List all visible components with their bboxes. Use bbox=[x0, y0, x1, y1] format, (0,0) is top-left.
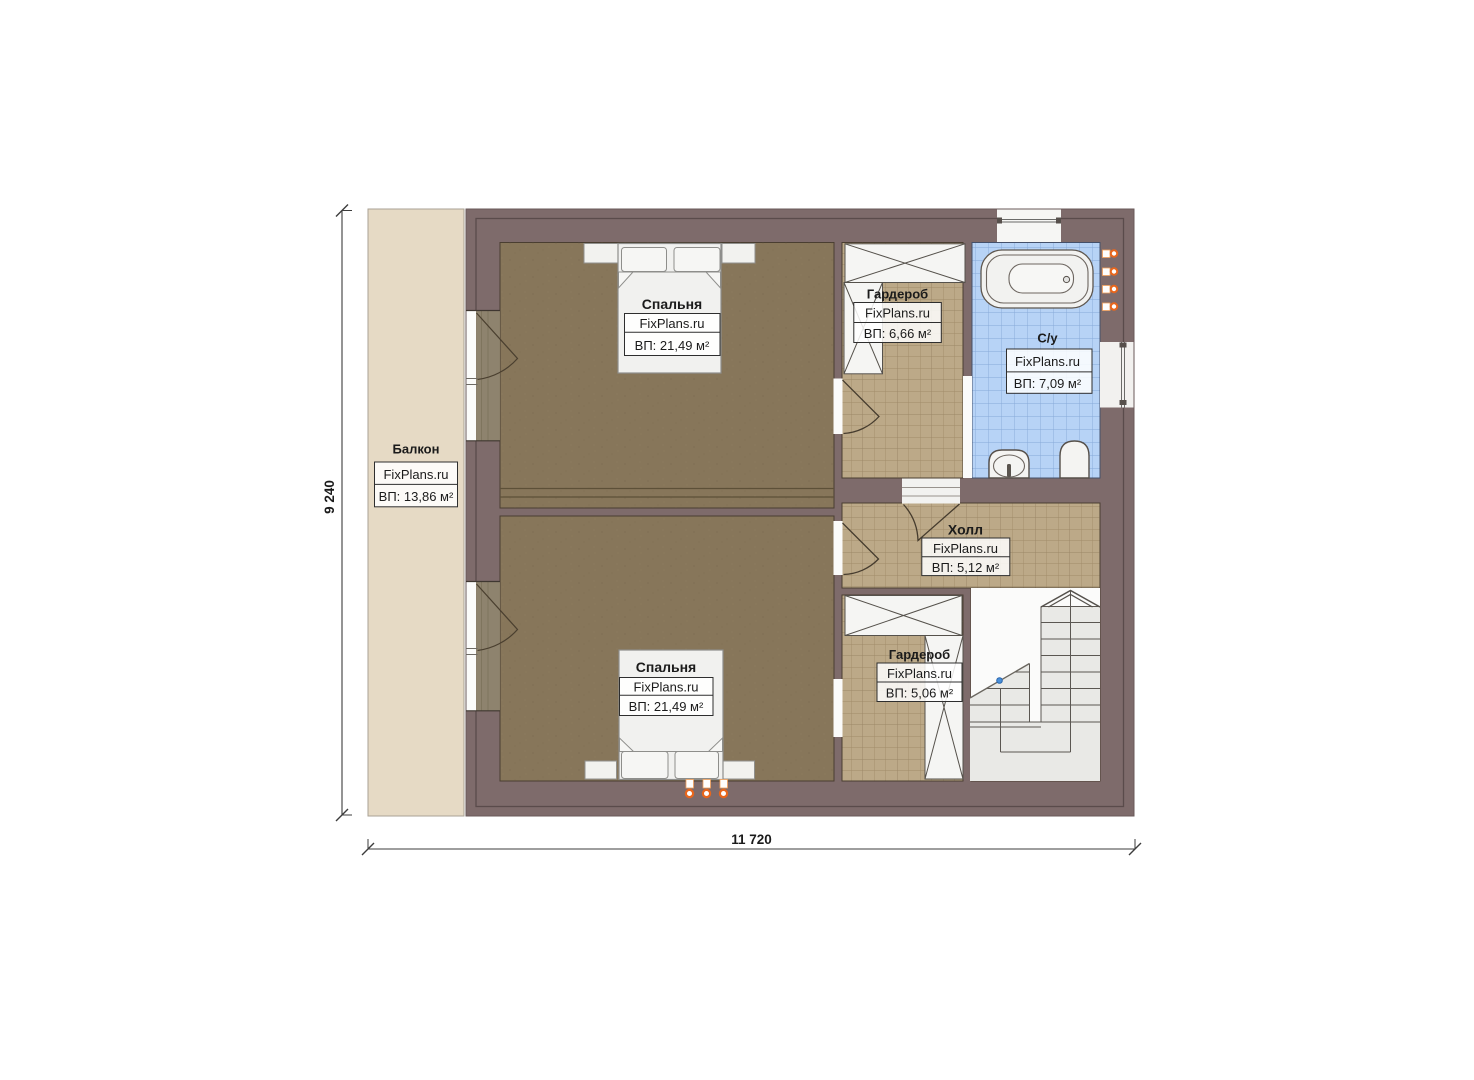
svg-text:Холл: Холл bbox=[948, 522, 983, 538]
svg-text:FixPlans.ru: FixPlans.ru bbox=[639, 316, 704, 331]
svg-text:С/у: С/у bbox=[1037, 331, 1058, 346]
svg-text:ВП: 21,49 м²: ВП: 21,49 м² bbox=[635, 338, 710, 353]
svg-text:ВП: 21,49 м²: ВП: 21,49 м² bbox=[629, 699, 704, 714]
svg-text:Гардероб: Гардероб bbox=[889, 647, 950, 662]
svg-text:FixPlans.ru: FixPlans.ru bbox=[865, 306, 930, 321]
svg-text:ВП: 5,06 м²: ВП: 5,06 м² bbox=[886, 686, 954, 701]
svg-text:ВП: 6,66 м²: ВП: 6,66 м² bbox=[864, 326, 932, 341]
svg-text:Спальня: Спальня bbox=[642, 296, 702, 312]
svg-text:Балкон: Балкон bbox=[393, 442, 440, 457]
svg-text:FixPlans.ru: FixPlans.ru bbox=[1015, 354, 1080, 369]
svg-text:ВП: 7,09 м²: ВП: 7,09 м² bbox=[1014, 376, 1082, 391]
svg-text:Спальня: Спальня bbox=[636, 659, 696, 675]
svg-text:11 720: 11 720 bbox=[731, 832, 772, 847]
svg-text:FixPlans.ru: FixPlans.ru bbox=[887, 666, 952, 681]
svg-text:FixPlans.ru: FixPlans.ru bbox=[633, 680, 698, 695]
svg-text:Гардероб: Гардероб bbox=[867, 287, 928, 302]
svg-text:ВП: 13,86 м²: ВП: 13,86 м² bbox=[379, 489, 454, 504]
svg-text:FixPlans.ru: FixPlans.ru bbox=[383, 467, 448, 482]
svg-text:9 240: 9 240 bbox=[322, 480, 337, 514]
svg-text:ВП: 5,12 м²: ВП: 5,12 м² bbox=[932, 560, 1000, 575]
svg-text:FixPlans.ru: FixPlans.ru bbox=[933, 541, 998, 556]
